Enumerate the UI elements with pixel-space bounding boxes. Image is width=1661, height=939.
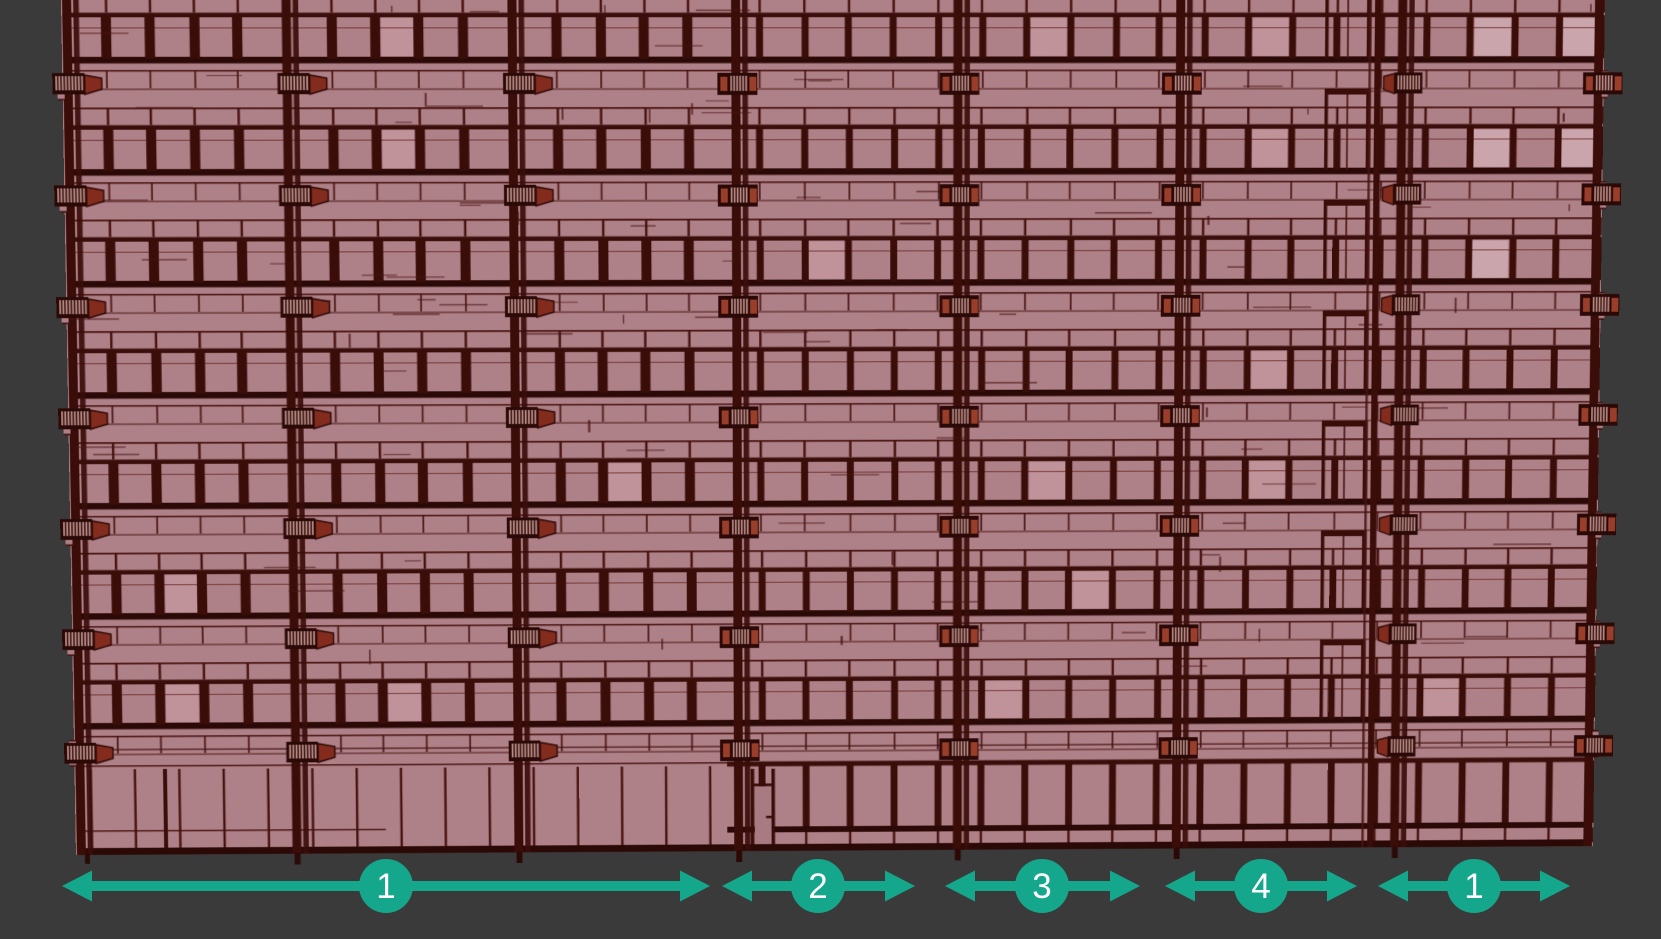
svg-text:1: 1 [376,867,395,906]
svg-text:4: 4 [1251,867,1270,906]
svg-text:2: 2 [808,867,827,906]
svg-text:3: 3 [1032,867,1051,906]
svg-text:1: 1 [1464,867,1483,906]
